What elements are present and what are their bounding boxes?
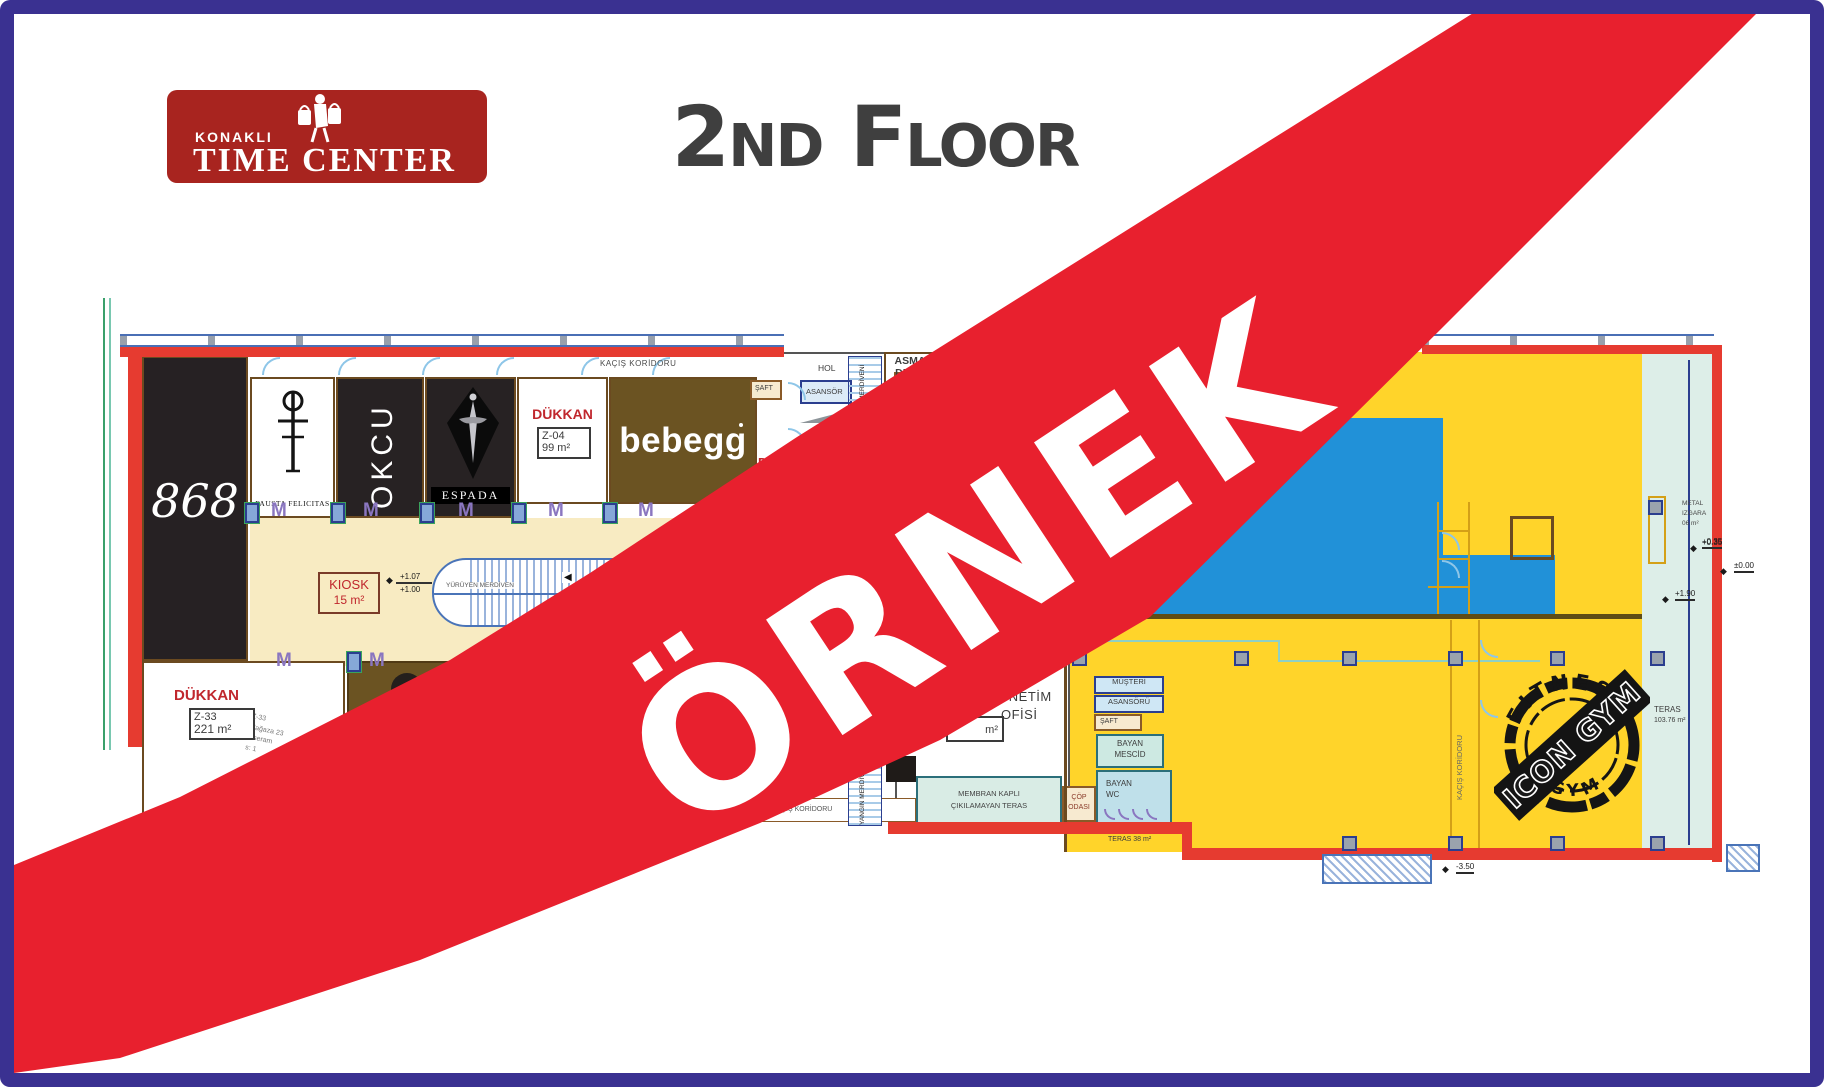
shop-okcu-name: OKCU bbox=[366, 391, 400, 509]
metal-izgara-1: METAL bbox=[1682, 500, 1703, 507]
musteri-label-1: MÜŞTERİ bbox=[1094, 678, 1164, 686]
z33-area: 221 m² bbox=[194, 723, 250, 736]
shop-okcu: OKCU bbox=[336, 377, 424, 518]
door-jamb bbox=[331, 503, 345, 523]
elevation-zero-text: ±0.00 bbox=[1734, 561, 1754, 573]
shop-fausta-name: FAUSTA FELICITAS bbox=[252, 500, 333, 508]
page-title: 2nd Floor bbox=[655, 88, 1095, 186]
room-bayan-mescid: BAYAN MESCİD bbox=[1096, 734, 1164, 768]
wc-fixture-icon bbox=[1104, 809, 1115, 820]
yonetim-label-2: OFİSİ bbox=[1001, 708, 1037, 723]
metal-izgara-2: IZGARA bbox=[1682, 510, 1706, 517]
room-asansor-label: ASANSÖR bbox=[806, 388, 843, 396]
room-bayan-wc: BAYAN WC bbox=[1096, 770, 1172, 826]
membran-label-1: MEMBRAN KAPLI bbox=[918, 790, 1060, 798]
plan-outline-bottom-mid bbox=[888, 822, 1184, 834]
z04-area: 99 m² bbox=[542, 442, 586, 454]
escalator-label: YÜRÜYEN MERDİVEN bbox=[444, 582, 516, 589]
wc-label-2: WC bbox=[1106, 791, 1119, 800]
door-m-icon: M bbox=[458, 500, 474, 522]
plan-outline-left bbox=[128, 347, 142, 747]
mescid-label-1: BAYAN bbox=[1098, 740, 1162, 749]
elevation-diamond-icon: ◆ bbox=[1442, 864, 1449, 875]
door-swing-icon bbox=[496, 357, 514, 375]
door-swing-icon bbox=[581, 357, 599, 375]
logo-name: TIME CENTER bbox=[193, 142, 456, 180]
column-post bbox=[1448, 836, 1463, 851]
door-swing-icon bbox=[338, 357, 356, 375]
icon-gym-stamp: FITNESS GYM ICON GYM bbox=[1494, 667, 1650, 823]
corridor-right-label: KAÇIŞ KORİDORU bbox=[1456, 690, 1464, 800]
door-jamb bbox=[603, 503, 617, 523]
shop-bebegg-name: bebegg bbox=[611, 421, 755, 460]
kiosk-name: KIOSK bbox=[320, 578, 378, 593]
elevation-p107: +1.07 bbox=[400, 572, 420, 581]
gym-floor-divider bbox=[1066, 614, 1642, 619]
column-post bbox=[1342, 836, 1357, 851]
door-jamb bbox=[512, 503, 526, 523]
fausta-monogram-icon bbox=[274, 387, 312, 479]
shopper-icon bbox=[290, 92, 348, 144]
z33-area-box: Z-33 221 m² bbox=[189, 708, 255, 740]
room-membran-teras: MEMBRAN KAPLI ÇIKILAMAYAN TERAS bbox=[916, 776, 1062, 824]
kiosk: KIOSK 15 m² bbox=[318, 572, 380, 614]
elevation-p100: +1.00 bbox=[400, 585, 420, 594]
site-line bbox=[103, 298, 105, 750]
elevation-diamond-icon: ◆ bbox=[1690, 543, 1697, 554]
room-asansor: ASANSÖR bbox=[800, 380, 852, 404]
corridor-right-wall bbox=[1478, 620, 1480, 852]
elevation-diamond-icon: ◆ bbox=[1662, 594, 1669, 605]
elevation-diamond-icon: ◆ bbox=[386, 575, 393, 586]
shop-espada: ESPADA bbox=[425, 377, 516, 518]
door-m-icon: M bbox=[271, 500, 287, 522]
column-post bbox=[1550, 836, 1565, 851]
mescid-label-2: MESCİD bbox=[1098, 751, 1162, 760]
column-post bbox=[1448, 651, 1463, 666]
z04-code: Z-04 bbox=[542, 430, 586, 442]
room-saft-3-label: ŞAFT bbox=[1100, 718, 1118, 726]
membran-label-2: ÇIKILAMAYAN TERAS bbox=[918, 802, 1060, 810]
escalator-arrow-icon: ◀ bbox=[562, 572, 574, 583]
door-m-icon: M bbox=[638, 500, 654, 522]
wc-fixture-icon bbox=[1118, 809, 1129, 820]
railing bbox=[1278, 660, 1540, 662]
espada-dagger-icon bbox=[445, 385, 501, 481]
door-m-icon: M bbox=[276, 650, 292, 672]
shop-fausta-felicitas: FAUSTA FELICITAS bbox=[250, 377, 335, 518]
teras-bottom-label: TERAS 38 m² bbox=[1108, 836, 1151, 844]
yonetim-area: m² bbox=[985, 724, 998, 736]
z33-type: DÜKKAN bbox=[174, 688, 239, 705]
room-saft-1-label: ŞAFT bbox=[755, 385, 773, 393]
elevation-line bbox=[396, 582, 432, 584]
grille bbox=[1322, 854, 1432, 884]
elevation-p190-text: +1.90 bbox=[1675, 589, 1695, 601]
gym-square-fixture bbox=[1510, 516, 1554, 560]
cop-label-2: ODASI bbox=[1064, 804, 1094, 812]
wc-label-1: BAYAN bbox=[1106, 780, 1132, 789]
door-swing-icon bbox=[262, 357, 280, 375]
elevation-p035-text: +0.35 bbox=[1702, 537, 1722, 549]
poster: KONAKLI TIME CENTER 2nd Floor 868 bbox=[0, 0, 1824, 1087]
door-m-icon: M bbox=[548, 500, 564, 522]
z04-area-box: Z-04 99 m² bbox=[537, 427, 591, 459]
room-hol-label: HOL bbox=[818, 364, 835, 374]
window-strip-left bbox=[120, 334, 784, 347]
teras-right-name: TERAS bbox=[1654, 706, 1681, 715]
z04-type: DÜKKAN bbox=[519, 407, 606, 423]
door-jamb bbox=[347, 652, 361, 672]
door-swing-icon bbox=[422, 357, 440, 375]
shop-z04: DÜKKAN Z-04 99 m² bbox=[517, 377, 608, 504]
grille bbox=[1726, 844, 1760, 872]
plan-outline-right bbox=[1712, 345, 1722, 862]
shop-868: 868 bbox=[142, 356, 248, 661]
musteri-label-2: ASANSÖRÜ bbox=[1094, 698, 1164, 706]
teras-window-line bbox=[1688, 360, 1690, 845]
plan-outline-top bbox=[120, 347, 784, 357]
column-post bbox=[1234, 651, 1249, 666]
kiosk-area: 15 m² bbox=[320, 594, 378, 607]
railing bbox=[1278, 640, 1280, 662]
logo: KONAKLI TIME CENTER bbox=[167, 90, 487, 183]
pool-stair bbox=[1428, 586, 1470, 588]
room-saft-1: ŞAFT bbox=[750, 380, 782, 400]
room-musteri-asansoru: MÜŞTERİ ASANSÖRÜ bbox=[1094, 676, 1164, 714]
door-m-icon: M bbox=[369, 650, 385, 672]
corridor-top-label: KAÇIŞ KORİDORU bbox=[600, 360, 676, 369]
door-jamb bbox=[245, 503, 259, 523]
door-m-icon: M bbox=[363, 500, 379, 522]
shop-868-name: 868 bbox=[144, 476, 246, 528]
room-cop-odasi: ÇÖP ODASI bbox=[1062, 786, 1096, 822]
wc-fixture-icon bbox=[1132, 809, 1143, 820]
cop-label-1: ÇÖP bbox=[1064, 794, 1094, 802]
metal-izgara-3: 06 m² bbox=[1682, 520, 1699, 527]
column-post bbox=[1342, 651, 1357, 666]
column-post bbox=[1650, 836, 1665, 851]
door-jamb bbox=[420, 503, 434, 523]
column-post bbox=[1550, 651, 1565, 666]
wc-fixture-icon bbox=[1146, 809, 1157, 820]
teras-right-area: 103.76 m² bbox=[1654, 717, 1686, 725]
column-post bbox=[1648, 500, 1663, 515]
room-saft-3: ŞAFT bbox=[1094, 714, 1142, 731]
teras-strip bbox=[1642, 352, 1712, 852]
elevation-m350-text: -3.50 bbox=[1456, 862, 1474, 874]
column-post bbox=[1650, 651, 1665, 666]
site-line bbox=[109, 298, 111, 750]
elevation-diamond-icon: ◆ bbox=[1720, 566, 1727, 577]
